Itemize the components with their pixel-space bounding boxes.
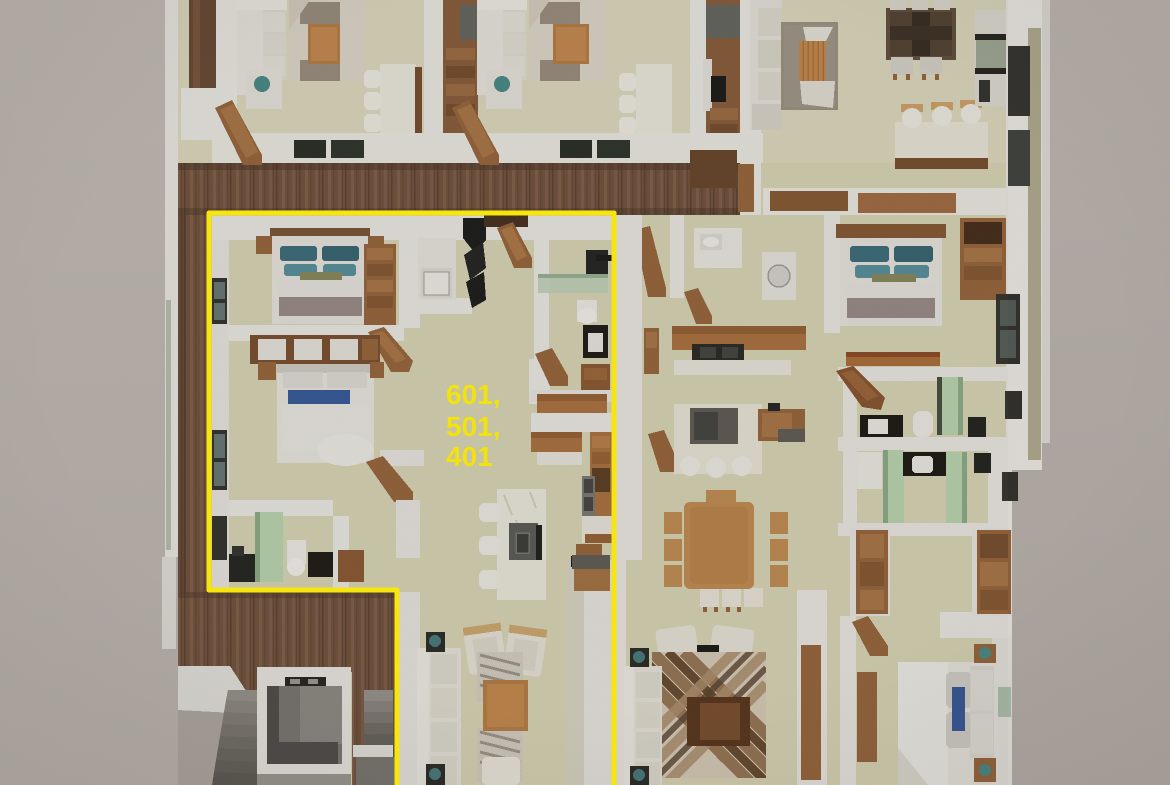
svg-text:501,: 501, [446, 411, 501, 442]
svg-text:401: 401 [446, 441, 493, 472]
svg-text:601,: 601, [446, 379, 501, 410]
